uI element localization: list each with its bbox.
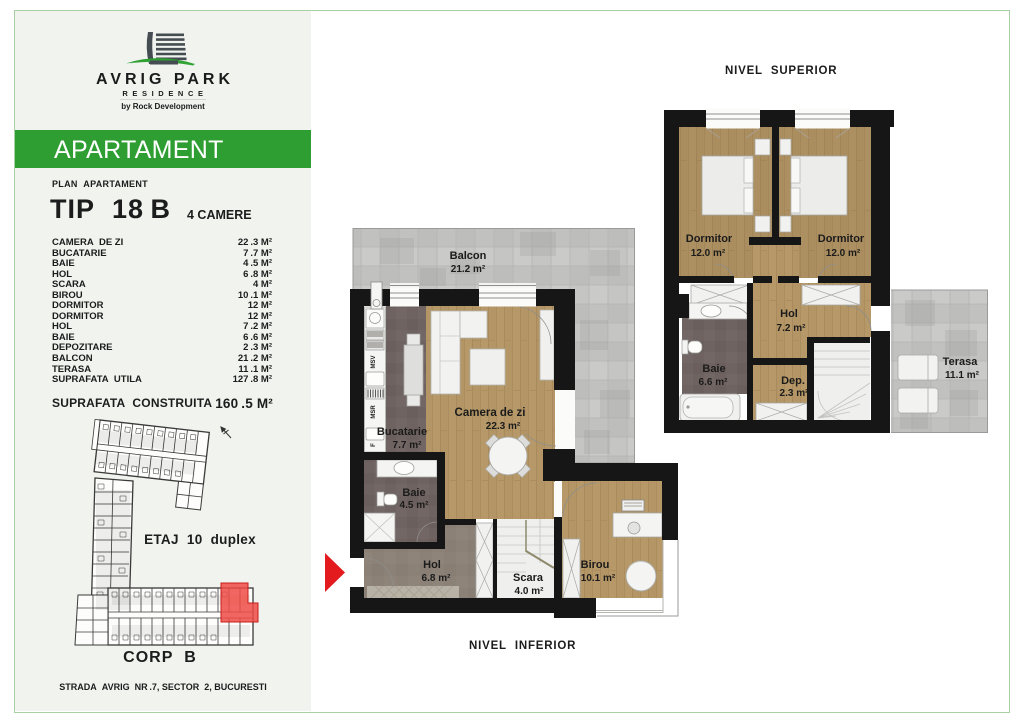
svg-text:4.5 m²: 4.5 m² xyxy=(400,500,430,511)
svg-text:Hol: Hol xyxy=(780,308,798,320)
svg-text:7.2 m²: 7.2 m² xyxy=(777,323,807,334)
svg-text:7.7 m²: 7.7 m² xyxy=(393,440,423,451)
svg-text:Baie: Baie xyxy=(702,363,725,375)
svg-text:by Rock Development: by Rock Development xyxy=(121,102,205,111)
svg-text:Dormitor: Dormitor xyxy=(686,233,733,245)
svg-text:4.0 m²: 4.0 m² xyxy=(515,586,545,597)
svg-text:10.1 m²: 10.1 m² xyxy=(581,573,616,584)
svg-text:Hol: Hol xyxy=(423,559,441,571)
svg-text:AVRIG PARK: AVRIG PARK xyxy=(96,71,234,88)
svg-text:MSV: MSV xyxy=(371,355,377,368)
svg-text:6.6 m²: 6.6 m² xyxy=(699,377,729,388)
svg-text:Birou: Birou xyxy=(581,559,610,571)
svg-text:Dep.: Dep. xyxy=(781,375,805,387)
svg-text:Terasa: Terasa xyxy=(943,356,979,368)
svg-text:RESIDENCE: RESIDENCE xyxy=(122,89,207,98)
svg-text:6.8 m²: 6.8 m² xyxy=(422,573,452,584)
svg-text:12.0 m²: 12.0 m² xyxy=(826,248,861,259)
svg-text:Baie: Baie xyxy=(402,487,425,499)
svg-text:F: F xyxy=(371,443,377,447)
svg-text:Bucatarie: Bucatarie xyxy=(377,426,427,438)
svg-text:21.2 m²: 21.2 m² xyxy=(451,264,486,275)
svg-text:Camera de zi: Camera de zi xyxy=(455,407,526,419)
svg-text:11.1 m²: 11.1 m² xyxy=(945,370,980,381)
svg-text:22.3 m²: 22.3 m² xyxy=(486,421,521,432)
svg-text:12.0 m²: 12.0 m² xyxy=(691,248,726,259)
svg-text:2.3 m²: 2.3 m² xyxy=(780,388,810,399)
svg-text:Dormitor: Dormitor xyxy=(818,233,865,245)
svg-text:Scara: Scara xyxy=(513,572,544,584)
svg-text:Balcon: Balcon xyxy=(450,250,487,262)
svg-text:MSR: MSR xyxy=(371,405,377,419)
